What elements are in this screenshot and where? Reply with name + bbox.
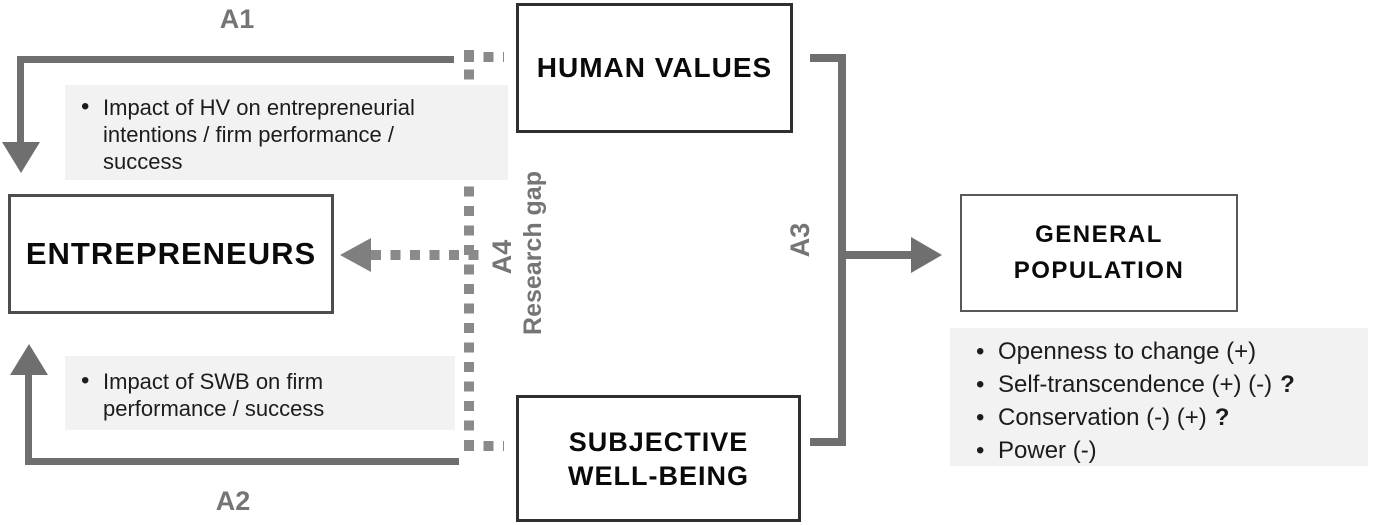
gp-values-item-text: Self-transcendence (+) (-) xyxy=(998,371,1272,398)
arrow-a1-shaft-vertical xyxy=(17,56,24,144)
box-entrepreneurs-label: ENTREPRENEURS xyxy=(26,236,316,272)
bullet-icon: • xyxy=(976,368,998,401)
arrow-a2-shaft-horizontal xyxy=(25,458,459,465)
label-a4: A4 xyxy=(487,227,517,287)
bullet-icon: • xyxy=(976,401,998,434)
panel-hv-impact-line2: intentions / firm performance / xyxy=(103,121,508,148)
panel-hv-impact-line3: success xyxy=(103,148,508,175)
panel-swb-impact: • Impact of SWB on firm performance / su… xyxy=(65,356,455,430)
arrow-a2-head-up-icon xyxy=(10,344,48,375)
list-item: •Openness to change (+) xyxy=(950,335,1368,368)
box-subjective-well-being: SUBJECTIVE WELL-BEING xyxy=(516,395,801,522)
label-a1: A1 xyxy=(214,4,260,35)
box-entrepreneurs: ENTREPRENEURS xyxy=(8,194,334,314)
gp-values-item-question: ? xyxy=(1280,371,1295,398)
panel-swb-impact-text: Impact of SWB on firm performance / succ… xyxy=(103,368,455,422)
box-human-values-label: HUMAN VALUES xyxy=(537,52,772,84)
panel-hv-impact-text: Impact of HV on entrepreneurial intentio… xyxy=(103,94,508,175)
arrow-a1-head-down-icon xyxy=(2,142,40,173)
arrow-a4-dashes xyxy=(371,250,479,260)
panel-hv-impact: • Impact of HV on entrepreneurial intent… xyxy=(65,85,508,180)
gp-values-item-question: ? xyxy=(1215,404,1230,431)
label-a3: A3 xyxy=(785,210,815,270)
research-gap-divider-bottom-stub xyxy=(464,441,504,451)
arrow-a3-head-right-icon xyxy=(911,237,942,273)
gp-values-item-text: Power (-) xyxy=(998,437,1097,464)
bullet-icon: • xyxy=(976,335,998,368)
box-swb-label-line1: SUBJECTIVE xyxy=(569,425,749,459)
panel-swb-impact-line2: performance / success xyxy=(103,395,455,422)
box-gp-label-line1: GENERAL xyxy=(1035,217,1163,253)
label-research-gap: Research gap xyxy=(518,153,548,353)
arrow-a2-shaft-vertical xyxy=(25,374,32,465)
box-human-values: HUMAN VALUES xyxy=(516,3,793,133)
box-gp-label-line2: POPULATION xyxy=(1014,253,1185,289)
gp-values-item-text: Openness to change (+) xyxy=(998,338,1256,365)
list-item: •Self-transcendence (+) (-)? xyxy=(950,368,1368,401)
box-swb-label-line2: WELL-BEING xyxy=(568,459,749,493)
panel-swb-impact-line1: Impact of SWB on firm xyxy=(103,368,455,395)
arrow-a4-head-left-icon xyxy=(340,238,371,272)
research-gap-divider-top-stub xyxy=(464,52,504,62)
bullet-icon: • xyxy=(81,93,89,120)
gp-values-item-text: Conservation (-) (+) xyxy=(998,404,1207,431)
diagram-canvas: A1 A2 A3 Research gap A4 HUMAN VALUES EN… xyxy=(0,0,1382,525)
label-a2: A2 xyxy=(210,486,256,517)
bullet-icon: • xyxy=(976,434,998,467)
arrow-a3-shaft xyxy=(843,251,913,259)
panel-gp-values: •Openness to change (+) •Self-transcende… xyxy=(950,328,1368,466)
list-item: •Power (-) xyxy=(950,434,1368,467)
bullet-icon: • xyxy=(81,367,89,394)
panel-hv-impact-line1: Impact of HV on entrepreneurial xyxy=(103,94,508,121)
bracket-a3-vertical xyxy=(838,54,846,446)
bracket-a3-bottom-stub xyxy=(810,438,844,446)
box-general-population: GENERAL POPULATION xyxy=(960,194,1238,312)
list-item: •Conservation (-) (+)? xyxy=(950,401,1368,434)
arrow-a1-shaft-horizontal xyxy=(17,56,454,63)
